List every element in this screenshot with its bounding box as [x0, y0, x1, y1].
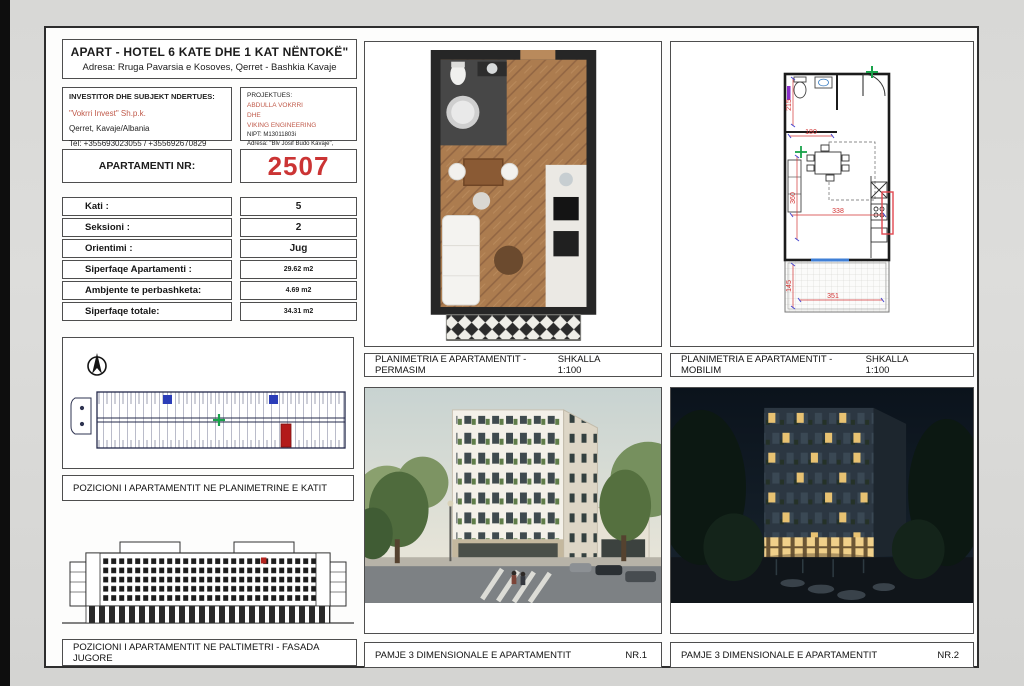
- view2-number-text: NR.2: [937, 650, 959, 661]
- dim-balcony-width: 351: [827, 293, 839, 300]
- dim-bath-width: 180: [805, 129, 817, 136]
- shower: [451, 101, 474, 124]
- row-label-seksioni: Seksioni :: [85, 222, 130, 233]
- facade-drawing-area: [62, 520, 354, 632]
- bath-fixture: [787, 86, 791, 100]
- tree: [599, 470, 651, 542]
- apartment-number-value: 2507: [240, 149, 357, 183]
- pouf: [473, 192, 491, 210]
- plan-mobilim-scale-text: SHKALLA 1:100: [866, 354, 931, 376]
- facade-elevation-drawing: [62, 520, 354, 632]
- apartment-number-text: 2507: [268, 151, 330, 182]
- render-day-panel: [364, 387, 662, 634]
- position-plan-caption-text: POZICIONI I APARTAMENTIT NE PLANIMETRINE…: [73, 483, 327, 494]
- facade-caption-text: POZICIONI I APARTAMENTIT NE PALTIMETRI -…: [73, 642, 342, 664]
- photo-edge-strip: [0, 0, 10, 686]
- view1-caption: PAMJE 3 DIMENSIONALE E APARTAMENTIT NR.1: [364, 642, 662, 668]
- plan-mobilim-caption-text: PLANIMETRIA E APARTAMENTIT - MOBILIM: [681, 354, 866, 376]
- table-row-label: Ambjente te perbashketa:: [62, 281, 232, 300]
- table-row-label: Siperfaqe totale:: [62, 302, 232, 321]
- designer-heading: PROJEKTUES:: [247, 92, 350, 99]
- table-row-value: 34.31 m2: [240, 302, 357, 321]
- stairwell-shape: [71, 398, 91, 434]
- dim-living-width: 338: [832, 208, 844, 215]
- position-plan-caption: POZICIONI I APARTAMENTIT NE PLANIMETRINE…: [62, 475, 354, 501]
- night-render-image: [671, 388, 973, 603]
- row-value-siperfaqe-totale: 34.31 m2: [284, 308, 314, 315]
- sofa: [442, 215, 479, 305]
- plan-permasim-scale-text: SHKALLA 1:100: [558, 354, 619, 376]
- roof-box: [120, 542, 180, 553]
- title-block: APART - HOTEL 6 KATE DHE 1 KAT NËNTOKË" …: [62, 39, 357, 79]
- designer-nipt: NIPT: M13011803i: [247, 132, 350, 139]
- position-plan-panel: [62, 337, 354, 469]
- position-plan-drawing: [63, 338, 353, 468]
- investor-name: "Vokrri Invest" Sh.p.k.: [69, 109, 225, 118]
- designer-conjunction: DHE: [247, 112, 350, 119]
- compass-icon: [88, 353, 106, 375]
- day-render-image: [365, 388, 661, 603]
- elevator-marker: [163, 395, 172, 404]
- apartment-3d-plan: [421, 50, 606, 342]
- architect-sheet-photo: { "header": { "title": "APART - HOTEL 6 …: [0, 0, 1024, 686]
- table-row-label: Kati :: [62, 197, 232, 216]
- table-row-label: Orientimi :: [62, 239, 232, 258]
- drawing-sheet: APART - HOTEL 6 KATE DHE 1 KAT NËNTOKË" …: [44, 26, 979, 668]
- table-row-label: Siperfaqe Apartamenti :: [62, 260, 232, 279]
- sheet-title: APART - HOTEL 6 KATE DHE 1 KAT NËNTOKË": [71, 45, 349, 59]
- sink: [487, 63, 498, 74]
- stove: [553, 197, 578, 220]
- facade-caption: POZICIONI I APARTAMENTIT NE PALTIMETRI -…: [62, 639, 357, 666]
- view2-caption-text: PAMJE 3 DIMENSIONALE E APARTAMENTIT: [681, 650, 877, 661]
- highlighted-apartment-unit: [281, 424, 291, 447]
- row-value-seksioni: 2: [296, 222, 302, 233]
- designer-name: ABDULLA VOKRRI: [247, 102, 350, 109]
- row-value-orientimi: Jug: [290, 243, 308, 254]
- roof-box: [234, 542, 294, 553]
- balcony-tiles: [446, 315, 580, 340]
- view1-caption-text: PAMJE 3 DIMENSIONALE E APARTAMENTIT: [375, 650, 571, 661]
- row-label-ambjente: Ambjente te perbashketa:: [85, 285, 201, 296]
- table-row-value: 29.62 m2: [240, 260, 357, 279]
- row-value-ambjente: 4.69 m2: [286, 287, 312, 294]
- designer-block: PROJEKTUES: ABDULLA VOKRRI DHE VIKING EN…: [240, 87, 357, 141]
- view1-number-text: NR.1: [625, 650, 647, 661]
- coffee-table: [494, 246, 523, 275]
- tech-plan-panel: 215 180 360 338 145 351: [670, 41, 974, 347]
- sheet-address: Adresa: Rruga Pavarsia e Kosoves, Qerret…: [83, 62, 337, 73]
- details-table-labels: Kati : Seksioni : Orientimi : Siperfaqe …: [62, 197, 232, 321]
- apartment-number-label: APARTAMENTI NR:: [62, 149, 232, 183]
- elevator-marker: [269, 395, 278, 404]
- details-table-values: 5 2 Jug 29.62 m2 4.69 m2 34.31 m2: [240, 197, 357, 321]
- dining-table: [464, 159, 503, 185]
- render-night-panel: [670, 387, 974, 634]
- investor-phone: Tel: +355693023055 / +355692670829: [69, 139, 225, 148]
- investor-block: INVESTITOR DHE SUBJEKT NDERTUES: "Vokrri…: [62, 87, 232, 141]
- investor-city: Qerret, Kavaje/Albania: [69, 124, 225, 133]
- investor-heading: INVESTITOR DHE SUBJEKT NDERTUES:: [69, 93, 225, 102]
- plan-permasim-caption: PLANIMETRIA E APARTAMENTIT - PERMASIM SH…: [364, 353, 662, 377]
- view2-caption: PAMJE 3 DIMENSIONALE E APARTAMENTIT NR.2: [670, 642, 974, 668]
- row-label-kati: Kati :: [85, 201, 109, 212]
- row-label-siperfaqe-totale: Siperfaqe totale:: [85, 306, 159, 317]
- row-label-siperfaqe-apartamenti: Siperfaqe Apartamenti :: [85, 264, 192, 275]
- table-row-value: Jug: [240, 239, 357, 258]
- designer-address: Adresa: "Blv Josif Budo Kavaje",: [247, 141, 350, 148]
- table-row-value: 2: [240, 218, 357, 237]
- apartment-number-label-text: APARTAMENTI NR:: [99, 160, 195, 172]
- row-value-siperfaqe-apartamenti: 29.62 m2: [284, 266, 314, 273]
- table-row-label: Seksioni :: [62, 218, 232, 237]
- render-plan-panel: [364, 41, 662, 347]
- dim-balcony-height: 145: [786, 280, 793, 292]
- apartment-tech-plan: 215 180 360 338 145 351: [771, 64, 906, 326]
- ground-colonnade: [86, 606, 330, 623]
- dim-bath-height: 215: [786, 99, 793, 111]
- highlighted-apartment-window: [261, 558, 266, 564]
- plan-permasim-caption-text: PLANIMETRIA E APARTAMENTIT - PERMASIM: [375, 354, 558, 376]
- plan-mobilim-caption: PLANIMETRIA E APARTAMENTIT - MOBILIM SHK…: [670, 353, 974, 377]
- table-row-value: 4.69 m2: [240, 281, 357, 300]
- designer-company: VIKING ENGINEERING: [247, 122, 350, 129]
- day-building-side: [564, 410, 598, 561]
- row-label-orientimi: Orientimi :: [85, 243, 133, 254]
- dim-living-height: 360: [790, 192, 797, 204]
- table-row-value: 5: [240, 197, 357, 216]
- row-value-kati: 5: [296, 201, 302, 212]
